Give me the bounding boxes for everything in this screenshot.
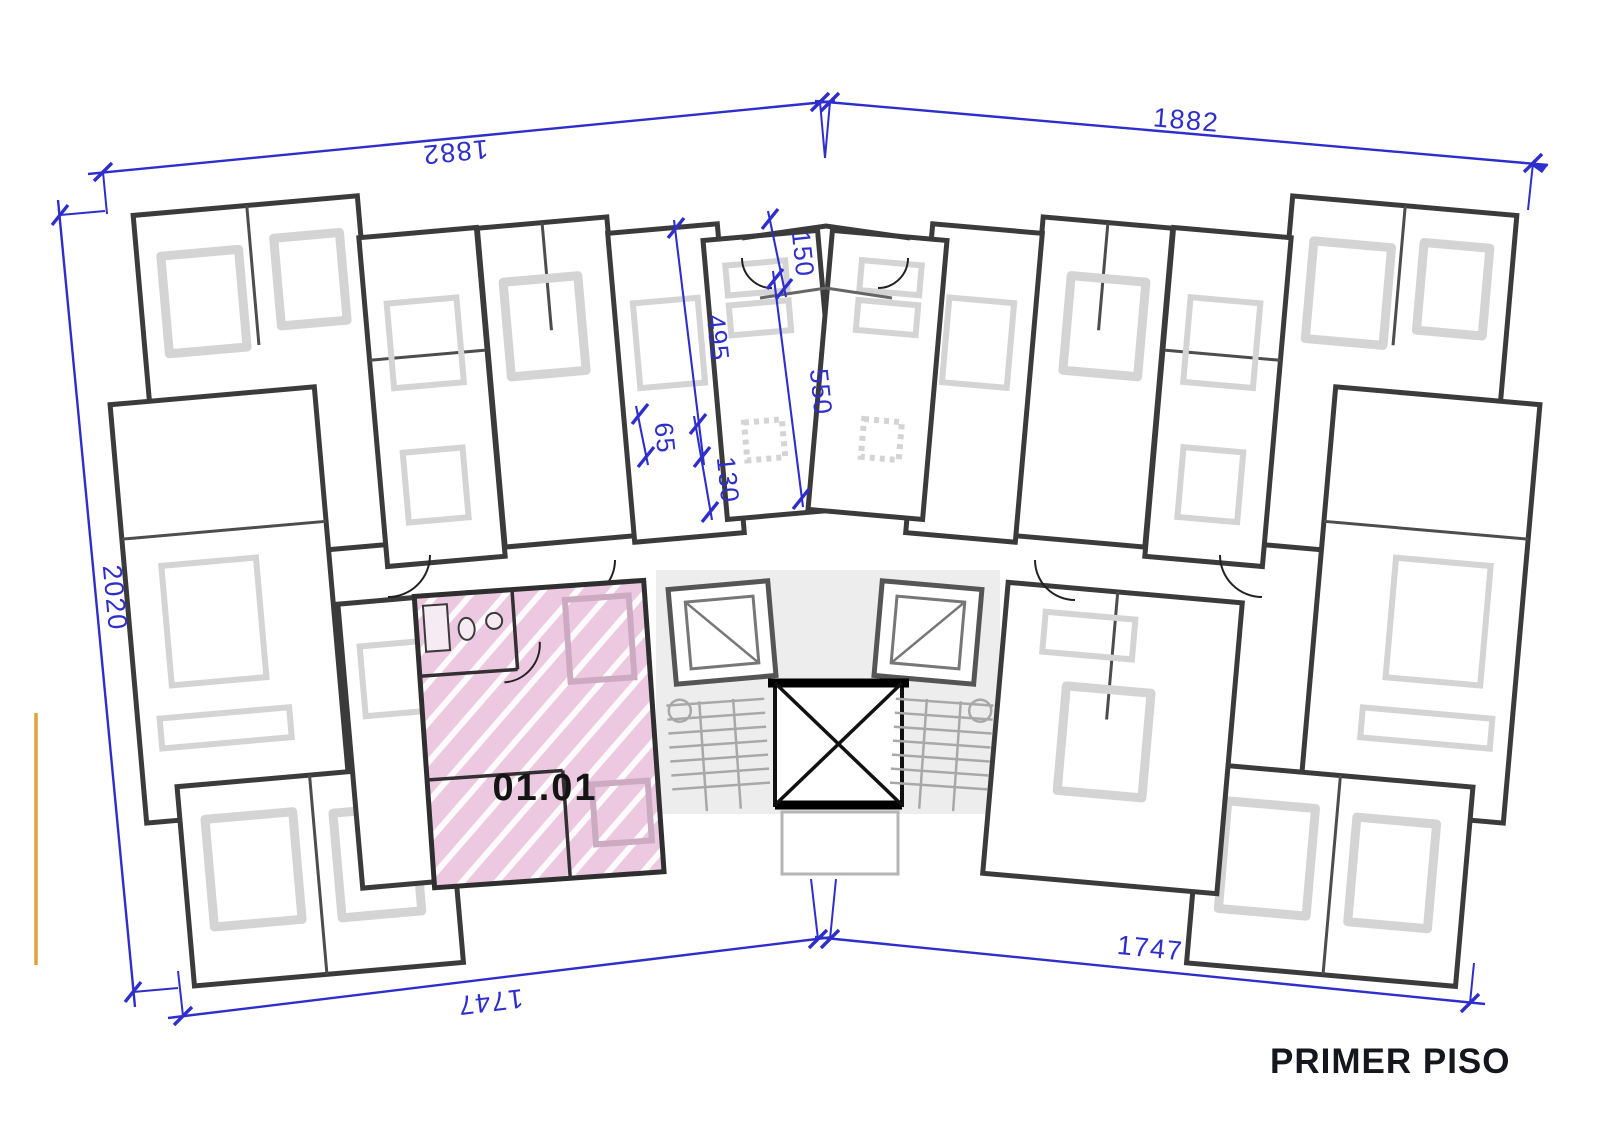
unit-01-01-body[interactable] bbox=[414, 580, 664, 887]
apartment-block bbox=[1299, 387, 1540, 823]
right-apartment-7 bbox=[983, 582, 1243, 893]
dimension-tick bbox=[762, 209, 778, 229]
dimension-value: 65 bbox=[649, 421, 682, 455]
dimension-value: 1747 bbox=[456, 983, 525, 1021]
dimension-value: 1747 bbox=[1116, 930, 1185, 966]
extension-line bbox=[103, 172, 107, 214]
dimension-top-left: 1882 bbox=[88, 93, 835, 214]
dimension-value: 550 bbox=[804, 367, 839, 416]
shower-fixture bbox=[423, 604, 450, 652]
extension-line bbox=[60, 211, 105, 215]
elevator-shaft bbox=[768, 683, 909, 805]
extension-line bbox=[825, 102, 830, 158]
extension-line bbox=[178, 971, 183, 1016]
sink-fixture bbox=[486, 612, 503, 629]
extension-line bbox=[133, 988, 178, 992]
extension-line bbox=[811, 879, 818, 939]
dimension-value: 1882 bbox=[421, 134, 490, 170]
unit-01-01[interactable]: 01.01 bbox=[414, 580, 664, 887]
peak-wall bbox=[742, 226, 910, 238]
left-apartment-5 bbox=[110, 387, 351, 823]
light-well-right bbox=[874, 581, 982, 684]
dimension-value: 130 bbox=[711, 455, 746, 504]
apartment-block bbox=[983, 582, 1243, 893]
apartment-block bbox=[110, 387, 351, 823]
floor-plan-page: 01.01 1882 1882 bbox=[0, 0, 1600, 1131]
lobby-outline bbox=[782, 812, 898, 874]
unit-number-label: 01.01 bbox=[492, 767, 597, 809]
dimension-value: 1882 bbox=[1152, 102, 1220, 138]
extension-line bbox=[830, 879, 836, 939]
right-apartment-5 bbox=[1299, 387, 1540, 823]
extension-line bbox=[1470, 963, 1474, 1003]
right-apartment-6 bbox=[1187, 764, 1473, 987]
dimension-value: 150 bbox=[786, 229, 821, 278]
floor-plan-canvas: 01.01 1882 1882 bbox=[0, 0, 1600, 1131]
dimension-top-right: 1882 bbox=[815, 93, 1548, 210]
plan-title: PRIMER PISO bbox=[1270, 1042, 1510, 1081]
light-well-left bbox=[668, 581, 776, 684]
extension-line bbox=[1528, 163, 1533, 210]
dimension-value: 2020 bbox=[97, 564, 133, 633]
dimension-value: 495 bbox=[701, 313, 736, 362]
toilet-fixture bbox=[458, 617, 475, 640]
